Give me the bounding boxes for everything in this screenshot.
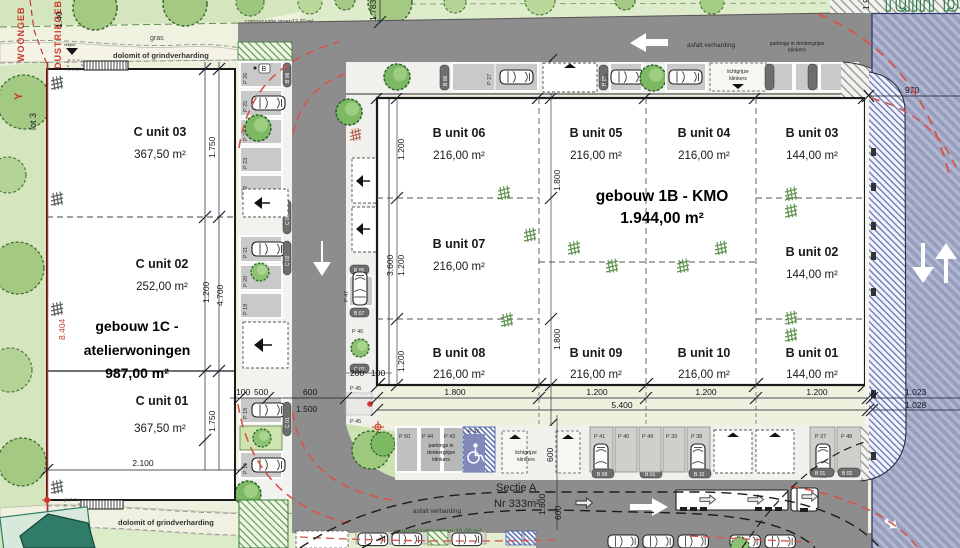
svg-text:600: 600 bbox=[303, 387, 317, 397]
svg-text:B unit 06: B unit 06 bbox=[433, 126, 486, 140]
svg-text:Y: Y bbox=[13, 92, 25, 100]
svg-text:donkergrijze: donkergrijze bbox=[427, 450, 455, 456]
svg-text:1.200: 1.200 bbox=[695, 387, 717, 397]
svg-text:Tuin b: Tuin b bbox=[880, 0, 959, 17]
svg-text:B 01: B 01 bbox=[645, 472, 656, 478]
svg-text:klinkers: klinkers bbox=[788, 48, 806, 54]
svg-text:1.40: 1.40 bbox=[54, 11, 64, 28]
svg-text:987,00 m²: 987,00 m² bbox=[105, 365, 169, 381]
svg-text:1.028: 1.028 bbox=[905, 400, 927, 410]
svg-text:1.800: 1.800 bbox=[537, 493, 547, 515]
svg-text:atelierwoningen: atelierwoningen bbox=[84, 342, 191, 358]
svg-text:1.900: 1.900 bbox=[861, 0, 871, 10]
svg-text:1.200: 1.200 bbox=[396, 350, 406, 372]
svg-text:klinkers: klinkers bbox=[432, 457, 450, 463]
svg-text:1.500: 1.500 bbox=[296, 404, 318, 414]
svg-text:P 21: P 21 bbox=[243, 247, 249, 258]
svg-text:B unit 10: B unit 10 bbox=[678, 346, 731, 360]
svg-text:B 07: B 07 bbox=[354, 311, 365, 317]
svg-text:B unit 01: B unit 01 bbox=[786, 346, 839, 360]
svg-text:asfalt verharding: asfalt verharding bbox=[687, 42, 735, 49]
svg-text:B unit 09: B unit 09 bbox=[570, 346, 623, 360]
svg-text:144,00 m²: 144,00 m² bbox=[786, 369, 838, 381]
svg-text:klinkers: klinkers bbox=[517, 457, 535, 463]
svg-text:C unit 01: C unit 01 bbox=[136, 394, 189, 408]
svg-text:B: B bbox=[262, 66, 267, 73]
svg-text:P 41: P 41 bbox=[594, 434, 605, 440]
svg-text:5.400: 5.400 bbox=[611, 400, 633, 410]
svg-text:P 18: P 18 bbox=[243, 408, 249, 419]
svg-text:P 26: P 26 bbox=[243, 73, 249, 84]
svg-text:P 27: P 27 bbox=[487, 74, 493, 85]
svg-text:P 48: P 48 bbox=[841, 434, 852, 440]
svg-text:4.700: 4.700 bbox=[215, 284, 225, 306]
svg-text:P 44: P 44 bbox=[422, 434, 433, 440]
svg-text:dolomit of grindverharding: dolomit of grindverharding bbox=[113, 51, 209, 60]
svg-text:P 23: P 23 bbox=[243, 158, 249, 169]
svg-text:gebouw 1C -: gebouw 1C - bbox=[95, 318, 179, 334]
svg-text:216,00 m²: 216,00 m² bbox=[678, 150, 730, 162]
svg-text:B 02: B 02 bbox=[842, 471, 853, 477]
svg-text:B unit 04: B unit 04 bbox=[678, 126, 731, 140]
svg-text:1.800: 1.800 bbox=[444, 387, 466, 397]
svg-text:B 10: B 10 bbox=[694, 472, 705, 478]
svg-text:P 20: P 20 bbox=[243, 276, 249, 287]
svg-text:dolomit of grindverharding: dolomit of grindverharding bbox=[118, 518, 214, 527]
svg-text:1.783: 1.783 bbox=[368, 0, 378, 21]
svg-text:P 40: P 40 bbox=[618, 434, 629, 440]
svg-text:P 25: P 25 bbox=[243, 101, 249, 112]
svg-text:B unit 02: B unit 02 bbox=[786, 245, 839, 259]
svg-text:WOONGEB: WOONGEB bbox=[16, 7, 26, 63]
svg-text:P 39: P 39 bbox=[666, 434, 677, 440]
svg-text:367,50 m²: 367,50 m² bbox=[134, 149, 186, 161]
svg-text:P 49: P 49 bbox=[642, 434, 653, 440]
svg-text:500: 500 bbox=[254, 387, 268, 397]
svg-text:P 19: P 19 bbox=[243, 304, 249, 315]
svg-text:B 06: B 06 bbox=[443, 75, 449, 86]
svg-text:klinkers: klinkers bbox=[729, 76, 747, 82]
svg-text:B 09: B 09 bbox=[597, 472, 608, 478]
svg-text:216,00 m²: 216,00 m² bbox=[570, 150, 622, 162]
svg-text:1.800: 1.800 bbox=[552, 328, 562, 350]
svg-text:B unit 05: B unit 05 bbox=[570, 126, 623, 140]
svg-text:2.100: 2.100 bbox=[132, 458, 154, 468]
svg-text:3.600: 3.600 bbox=[385, 254, 395, 276]
svg-text:8.404: 8.404 bbox=[57, 318, 67, 340]
svg-text:C 01: C 01 bbox=[285, 417, 291, 428]
svg-text:P 37: P 37 bbox=[815, 434, 826, 440]
svg-text:P 46: P 46 bbox=[352, 329, 363, 335]
svg-text:P 45: P 45 bbox=[350, 386, 361, 392]
svg-text:C unit 03: C unit 03 bbox=[134, 125, 187, 139]
svg-text:parkings in: parkings in bbox=[428, 443, 453, 449]
svg-text:lichtgrijze: lichtgrijze bbox=[515, 450, 537, 456]
svg-text:600: 600 bbox=[553, 506, 563, 520]
svg-text:367,50 m²: 367,50 m² bbox=[134, 423, 186, 435]
svg-text:216,00 m²: 216,00 m² bbox=[433, 261, 485, 273]
svg-text:P 38: P 38 bbox=[691, 434, 702, 440]
svg-text:1.750: 1.750 bbox=[207, 410, 217, 432]
svg-text:B unit 08: B unit 08 bbox=[433, 346, 486, 360]
svg-text:600: 600 bbox=[545, 448, 555, 462]
svg-text:veldput: veldput bbox=[64, 43, 75, 47]
svg-text:216,00 m²: 216,00 m² bbox=[433, 150, 485, 162]
svg-text:B 06: B 06 bbox=[285, 72, 291, 83]
svg-text:gras: gras bbox=[150, 35, 164, 42]
svg-text:1.023: 1.023 bbox=[905, 387, 927, 397]
svg-text:216,00 m²: 216,00 m² bbox=[433, 369, 485, 381]
svg-text:252,00 m²: 252,00 m² bbox=[136, 281, 188, 293]
svg-text:B 01: B 01 bbox=[815, 471, 826, 477]
svg-text:P 47: P 47 bbox=[344, 291, 350, 302]
svg-text:lot 3: lot 3 bbox=[28, 113, 38, 130]
svg-text:C 02: C 02 bbox=[285, 255, 291, 266]
svg-text:lichtgrijze: lichtgrijze bbox=[727, 69, 749, 75]
svg-text:P 42: P 42 bbox=[468, 429, 479, 435]
svg-text:1.800: 1.800 bbox=[552, 169, 562, 191]
svg-text:216,00 m²: 216,00 m² bbox=[570, 369, 622, 381]
svg-text:Nr 333m²: Nr 333m² bbox=[494, 498, 540, 510]
svg-text:P 45: P 45 bbox=[350, 419, 361, 425]
svg-text:144,00 m²: 144,00 m² bbox=[786, 269, 838, 281]
svg-text:B unit 07: B unit 07 bbox=[433, 237, 486, 251]
svg-text:1.750: 1.750 bbox=[207, 136, 217, 158]
svg-text:B unit 03: B unit 03 bbox=[786, 126, 839, 140]
svg-text:parkings in donkergrijze: parkings in donkergrijze bbox=[770, 41, 825, 47]
svg-text:1.200: 1.200 bbox=[396, 254, 406, 276]
svg-text:1.200: 1.200 bbox=[806, 387, 828, 397]
svg-text:asfalt verharding: asfalt verharding bbox=[413, 508, 461, 515]
svg-text:216,00 m²: 216,00 m² bbox=[678, 369, 730, 381]
svg-text:1.200: 1.200 bbox=[586, 387, 608, 397]
svg-text:1.200: 1.200 bbox=[396, 138, 406, 160]
svg-text:144,00 m²: 144,00 m² bbox=[786, 150, 838, 162]
svg-text:100: 100 bbox=[236, 387, 250, 397]
svg-text:1.200: 1.200 bbox=[201, 281, 211, 303]
svg-text:gebouw 1B - KMO: gebouw 1B - KMO bbox=[596, 188, 729, 205]
svg-text:1.944,00 m²: 1.944,00 m² bbox=[620, 210, 704, 227]
svg-text:P 43: P 43 bbox=[444, 434, 455, 440]
svg-text:P 29: P 29 bbox=[604, 74, 610, 85]
svg-text:C unit 02: C unit 02 bbox=[136, 257, 189, 271]
svg-text:P 50: P 50 bbox=[399, 434, 410, 440]
